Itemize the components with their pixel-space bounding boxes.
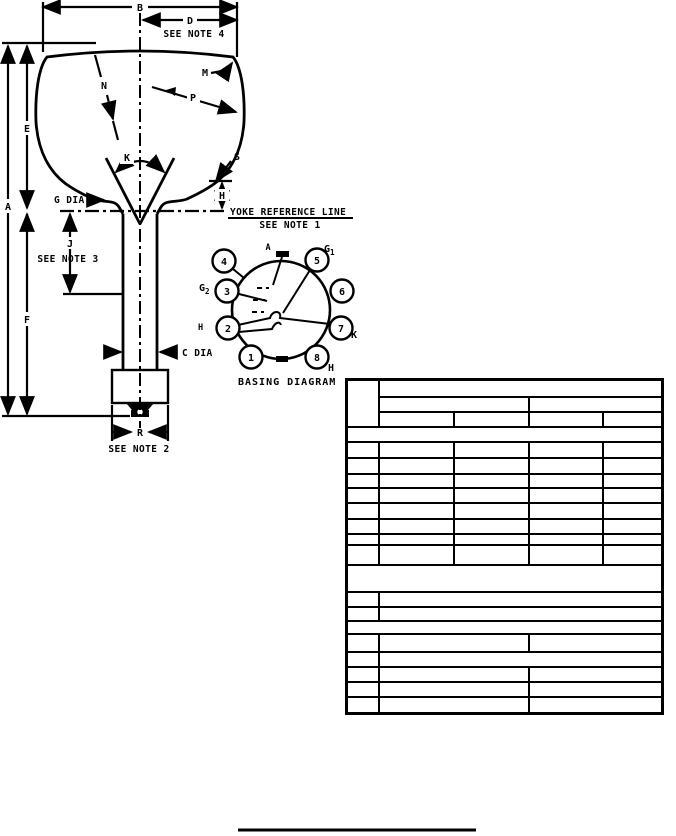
table-cell [529, 682, 663, 697]
table-cell [379, 519, 454, 534]
table-cell [379, 380, 663, 397]
pin-1: 1 [248, 353, 254, 364]
table-cell [529, 667, 663, 682]
table-cell [529, 503, 603, 519]
table-cell [347, 534, 379, 545]
dim-label-N: N [101, 81, 107, 92]
heater-label-pin8: H [328, 363, 334, 374]
table-cell [454, 474, 529, 488]
table-cell [347, 380, 379, 427]
note-3-text: SEE NOTE 3 [37, 254, 98, 265]
table-cell [454, 503, 529, 519]
heater-element [238, 312, 338, 325]
anode-label: A [265, 243, 270, 253]
pin-8: 8 [314, 353, 320, 364]
dimension-table-grid [345, 378, 664, 715]
table-cell [529, 697, 663, 714]
table-cell [379, 652, 663, 667]
table-cell [454, 488, 529, 503]
pin-6: 6 [339, 287, 345, 298]
g2-label: G2 [199, 283, 210, 296]
label-backgrounds [1, 0, 229, 326]
table-cell [529, 458, 603, 474]
table-cell [454, 534, 529, 545]
leader-M [211, 63, 232, 73]
table-cell [347, 488, 379, 503]
dim-label-B: B [137, 3, 143, 14]
table-cell [347, 503, 379, 519]
table-cell [454, 442, 529, 458]
dim-label-R: R [137, 428, 144, 439]
table-cell [529, 634, 663, 652]
table-cell [529, 442, 603, 458]
table-cell [379, 458, 454, 474]
bottom-key [276, 356, 288, 362]
table-cell [454, 545, 529, 565]
table-cell [347, 474, 379, 488]
dim-label-A: A [5, 202, 11, 213]
table-cell [379, 442, 454, 458]
table-cell [347, 621, 663, 634]
table-cell [347, 427, 663, 442]
table-cell [347, 592, 379, 607]
table-cell [347, 442, 379, 458]
table-cell [379, 474, 454, 488]
table-cell [347, 519, 379, 534]
table-cell [379, 634, 529, 652]
table-cell [529, 474, 603, 488]
dim-label-C-dia: C DIA [182, 348, 213, 359]
note-2-text: SEE NOTE 2 [108, 444, 169, 455]
table-cell [347, 458, 379, 474]
note-1-text: SEE NOTE 1 [259, 220, 320, 231]
dim-label-S: S [234, 152, 240, 163]
table-cell [379, 697, 529, 714]
table-cell [454, 412, 529, 427]
dim-label-E: E [24, 124, 30, 135]
table-cell [529, 534, 603, 545]
table-cell [603, 519, 663, 534]
dim-label-F: F [24, 315, 30, 326]
table-cell [454, 458, 529, 474]
dim-label-J: J [67, 239, 73, 250]
table-cell [603, 474, 663, 488]
table-cell [379, 592, 663, 607]
cathode-label: K [351, 330, 357, 341]
dim-label-M: M [202, 68, 208, 79]
table-cell [529, 412, 603, 427]
table-cell [347, 652, 379, 667]
table-cell [347, 667, 379, 682]
basing-diagram: 1 2 3 4 5 6 7 8 A G1 G2 K H H BASING DIA… [198, 243, 357, 388]
table-cell [529, 545, 603, 565]
spec-sheet-page: B D SEE NOTE 4 A E F J SEE NOTE 3 N P M … [0, 0, 676, 836]
table-cell [379, 534, 454, 545]
table-cell [379, 488, 454, 503]
table-cell [529, 488, 603, 503]
table-cell [603, 534, 663, 545]
table-cell [379, 607, 663, 621]
basing-diagram-title: BASING DIAGRAM [238, 377, 336, 388]
table-cell [379, 397, 529, 412]
table-cell [347, 545, 379, 565]
top-key [276, 251, 289, 257]
table-cell [603, 412, 663, 427]
dim-label-H: H [219, 191, 225, 202]
pin-3: 3 [224, 287, 230, 298]
pin-4: 4 [221, 257, 227, 268]
dim-label-D: D [187, 16, 193, 27]
base-circle [232, 261, 330, 359]
table-cell [603, 488, 663, 503]
table-cell [379, 412, 454, 427]
dimension-table [345, 378, 664, 715]
table-cell [454, 519, 529, 534]
table-cell [529, 519, 603, 534]
table-cell [347, 634, 379, 652]
table-cell [347, 697, 379, 714]
pin-2: 2 [225, 324, 231, 335]
table-cell [379, 682, 529, 697]
heater-label-pin2: H [198, 323, 203, 333]
dim-label-G-dia: G DIA [54, 195, 85, 206]
table-cell [347, 682, 379, 697]
table-cell [347, 607, 379, 621]
base-pins: 1 2 3 4 5 6 7 8 [213, 249, 354, 369]
table-cell [529, 397, 663, 412]
dim-label-P: P [190, 93, 196, 104]
pin-7: 7 [338, 324, 344, 335]
table-cell [603, 545, 663, 565]
yoke-reference-line-text: YOKE REFERENCE LINE [230, 207, 346, 218]
table-cell [347, 565, 663, 592]
table-cell [379, 545, 454, 565]
pin-5: 5 [314, 256, 320, 267]
table-cell [603, 458, 663, 474]
note-4-text: SEE NOTE 4 [163, 29, 224, 40]
table-cell [603, 503, 663, 519]
table-cell [379, 503, 454, 519]
dim-label-K: K [124, 153, 130, 164]
table-cell [603, 442, 663, 458]
table-cell [379, 667, 529, 682]
